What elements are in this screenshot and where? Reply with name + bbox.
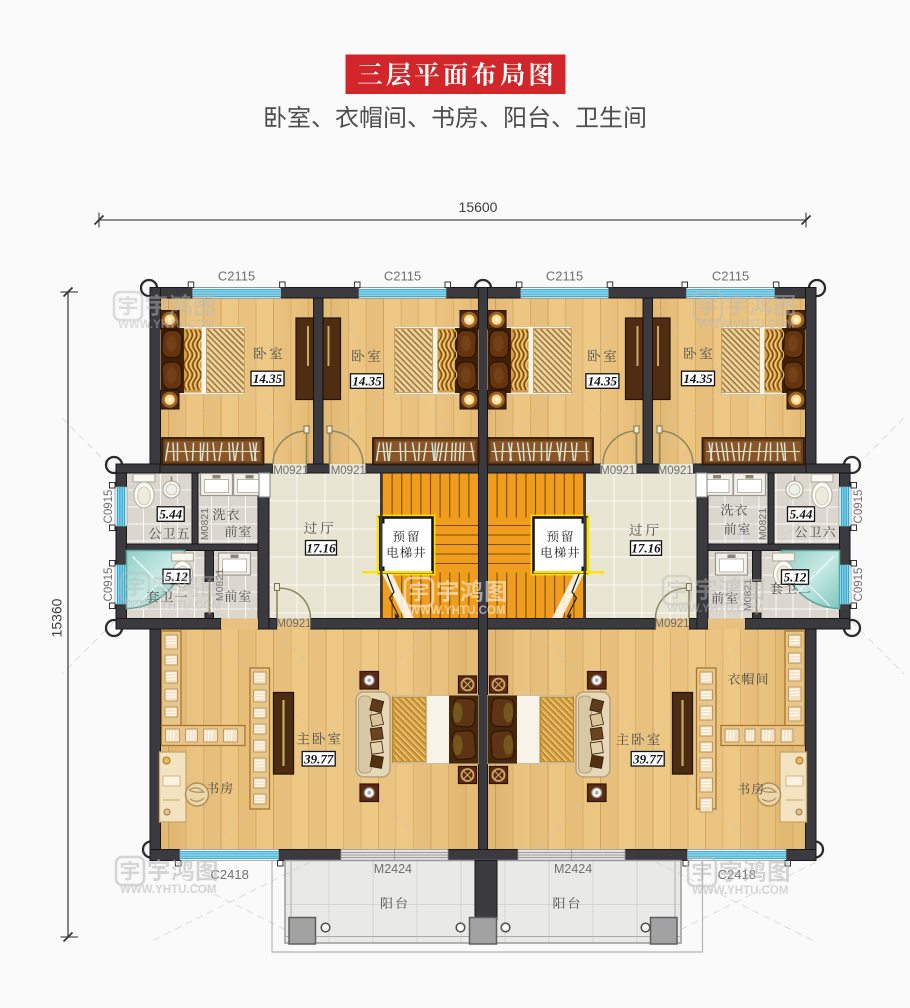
svg-text:5.44: 5.44 xyxy=(159,507,182,522)
svg-text:14.35: 14.35 xyxy=(683,371,713,386)
svg-text:WWW.YHTU.COM: WWW.YHTU.COM xyxy=(667,603,763,615)
svg-text:C0915: C0915 xyxy=(103,568,115,602)
svg-text:C0915: C0915 xyxy=(853,568,865,602)
svg-text:14.35: 14.35 xyxy=(352,374,382,389)
svg-text:M0921: M0921 xyxy=(331,465,366,477)
svg-text:14.35: 14.35 xyxy=(253,371,283,386)
svg-text:5.44: 5.44 xyxy=(790,507,813,522)
svg-text:WWW.YHTU.COM: WWW.YHTU.COM xyxy=(692,885,788,897)
svg-text:C0915: C0915 xyxy=(103,490,115,524)
svg-text:M2424: M2424 xyxy=(554,862,592,876)
svg-text:M0821: M0821 xyxy=(199,508,211,540)
svg-text:15600: 15600 xyxy=(459,199,498,215)
svg-text:39.77: 39.77 xyxy=(632,751,663,766)
svg-text:M0921: M0921 xyxy=(600,465,635,477)
svg-text:WWW.YHTU.COM: WWW.YHTU.COM xyxy=(125,600,221,612)
svg-text:WWW.YHTU.COM: WWW.YHTU.COM xyxy=(118,319,214,331)
svg-text:17.16: 17.16 xyxy=(631,541,661,556)
svg-text:15360: 15360 xyxy=(49,598,65,637)
svg-text:WWW.YHTU.COM: WWW.YHTU.COM xyxy=(409,605,505,617)
svg-text:C2115: C2115 xyxy=(384,269,421,284)
svg-text:C2115: C2115 xyxy=(546,269,583,284)
svg-text:WWW.YHTU.COM: WWW.YHTU.COM xyxy=(698,319,794,331)
svg-text:14.35: 14.35 xyxy=(588,374,618,389)
svg-text:M2424: M2424 xyxy=(374,862,412,876)
svg-text:39.77: 39.77 xyxy=(303,751,334,766)
svg-text:M0921: M0921 xyxy=(273,465,308,477)
svg-text:5.12: 5.12 xyxy=(784,570,807,585)
svg-text:M0921: M0921 xyxy=(276,618,311,630)
svg-text:M0921: M0921 xyxy=(654,618,689,630)
svg-text:C2115: C2115 xyxy=(712,269,749,284)
svg-text:M0821: M0821 xyxy=(757,508,769,540)
svg-text:M0921: M0921 xyxy=(658,465,693,477)
svg-text:WWW.YHTU.COM: WWW.YHTU.COM xyxy=(120,884,216,896)
svg-text:17.16: 17.16 xyxy=(306,540,336,555)
svg-text:C0915: C0915 xyxy=(853,490,865,524)
svg-text:C2115: C2115 xyxy=(218,269,255,284)
